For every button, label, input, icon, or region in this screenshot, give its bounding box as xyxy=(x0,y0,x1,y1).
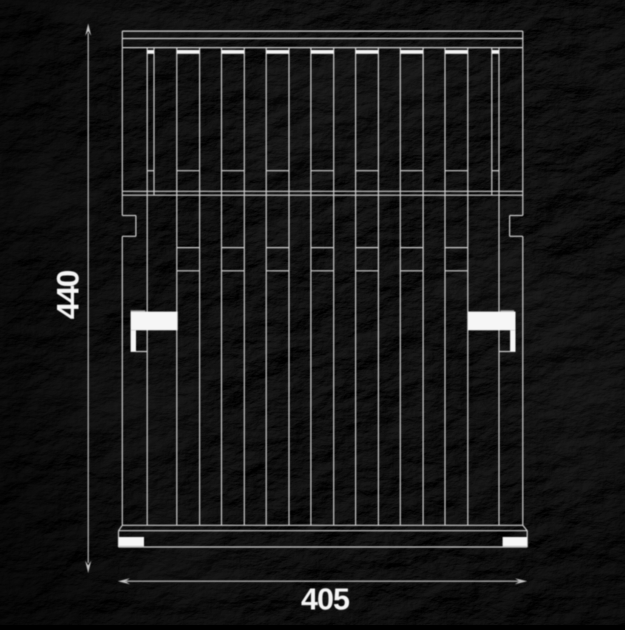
svg-text:405: 405 xyxy=(301,583,350,617)
svg-text:440: 440 xyxy=(50,270,86,319)
